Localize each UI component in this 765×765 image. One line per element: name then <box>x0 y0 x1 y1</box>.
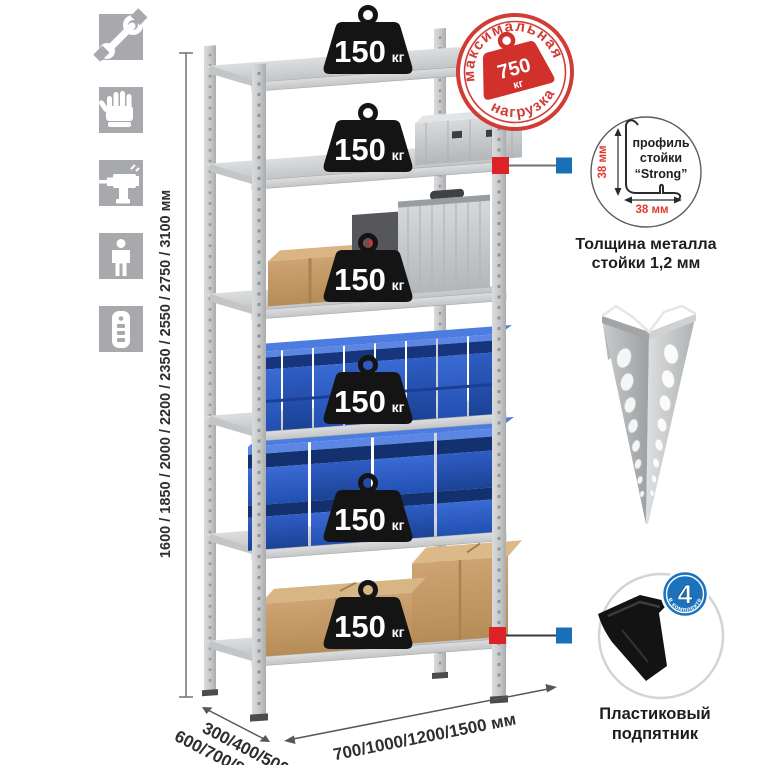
svg-text:150: 150 <box>334 132 386 167</box>
svg-text:150: 150 <box>334 34 386 69</box>
height-dimension: 1600 / 1850 / 2000 / 2200 / 2350 / 2550 … <box>158 53 193 697</box>
profile-label: “Strong” <box>635 167 688 181</box>
drill-icon <box>99 160 144 206</box>
profile-detail: 38 мм 38 мм профиль стойки “Strong” Толщ… <box>575 117 716 272</box>
badge-number: 4 <box>677 580 692 610</box>
svg-text:кг: кг <box>392 147 405 163</box>
profile-label: стойки <box>640 151 682 165</box>
width-dimension-label: 700/1000/1200/1500 мм <box>332 709 518 764</box>
plastic-foot-front-left <box>250 713 268 721</box>
svg-text:кг: кг <box>392 399 405 415</box>
svg-text:150: 150 <box>334 609 386 644</box>
profile-height-dim: 38 мм <box>597 145 609 178</box>
person-icon <box>99 233 143 279</box>
profile-label: профиль <box>632 136 689 150</box>
svg-text:150: 150 <box>334 262 386 297</box>
marker-blue-bottom <box>556 628 572 644</box>
weight-shelf-1: 150 кг <box>324 8 413 75</box>
profile-leader <box>492 157 572 174</box>
svg-text:кг: кг <box>392 517 405 533</box>
foot-detail: 4 в комплекте Пластиковый подпятник <box>598 571 723 743</box>
svg-text:кг: кг <box>392 49 405 65</box>
shelving-product-infographic: 1600 / 1850 / 2000 / 2200 / 2350 / 2550 … <box>0 0 765 765</box>
aluminum-case-large <box>398 187 490 295</box>
corner-profile-image <box>602 306 696 524</box>
width-dimension: 700/1000/1200/1500 мм <box>284 684 557 764</box>
foot-caption: подпятник <box>612 725 699 743</box>
weight-shelf-2: 150 кг <box>324 106 413 173</box>
assembly-icons-column <box>93 8 147 352</box>
profile-caption: Толщина металла <box>575 236 716 253</box>
quantity-badge: 4 в комплекте <box>662 571 708 617</box>
infographic-canvas: 1600 / 1850 / 2000 / 2200 / 2350 / 2550 … <box>0 0 765 765</box>
svg-text:150: 150 <box>334 502 386 537</box>
wrench-icon <box>93 8 147 62</box>
foot-leader <box>489 627 572 644</box>
foot-caption: Пластиковый <box>599 705 710 723</box>
svg-text:кг: кг <box>392 624 405 640</box>
gloves-icon <box>98 87 143 133</box>
marker-red-bottom <box>489 627 506 644</box>
svg-text:150: 150 <box>334 384 386 419</box>
profile-caption: стойки 1,2 мм <box>592 255 701 272</box>
profile-width-dim: 38 мм <box>635 204 668 216</box>
marker-red-top <box>492 157 509 174</box>
height-dimension-label: 1600 / 1850 / 2000 / 2200 / 2350 / 2550 … <box>158 190 174 558</box>
depth-dimension: 300/400/500 600/700/800 мм <box>171 707 299 765</box>
marker-blue-top <box>556 158 572 174</box>
post-profile-icon <box>99 306 143 352</box>
svg-text:кг: кг <box>392 277 405 293</box>
